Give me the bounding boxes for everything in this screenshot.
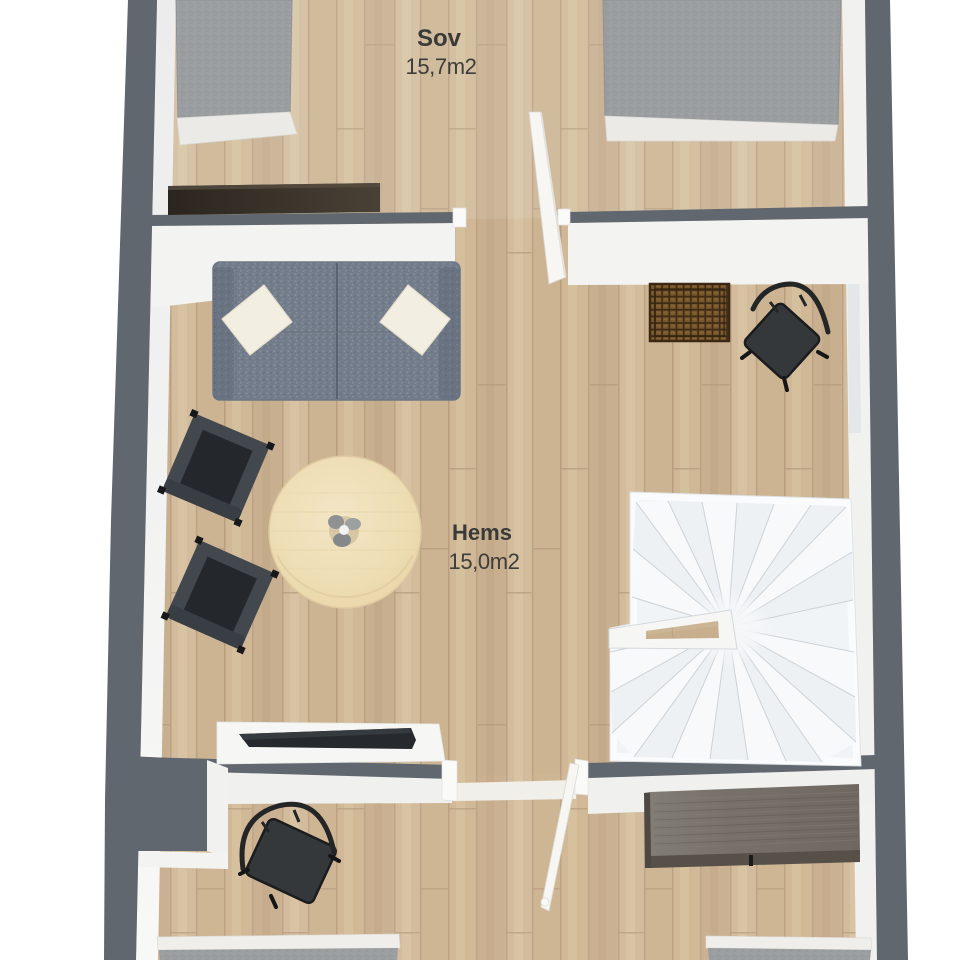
svg-text:Sov: Sov <box>417 25 462 52</box>
svg-text:15,0m2: 15,0m2 <box>449 549 520 574</box>
svg-text:15,7m2: 15,7m2 <box>406 54 477 79</box>
svg-text:Hems: Hems <box>452 520 512 545</box>
